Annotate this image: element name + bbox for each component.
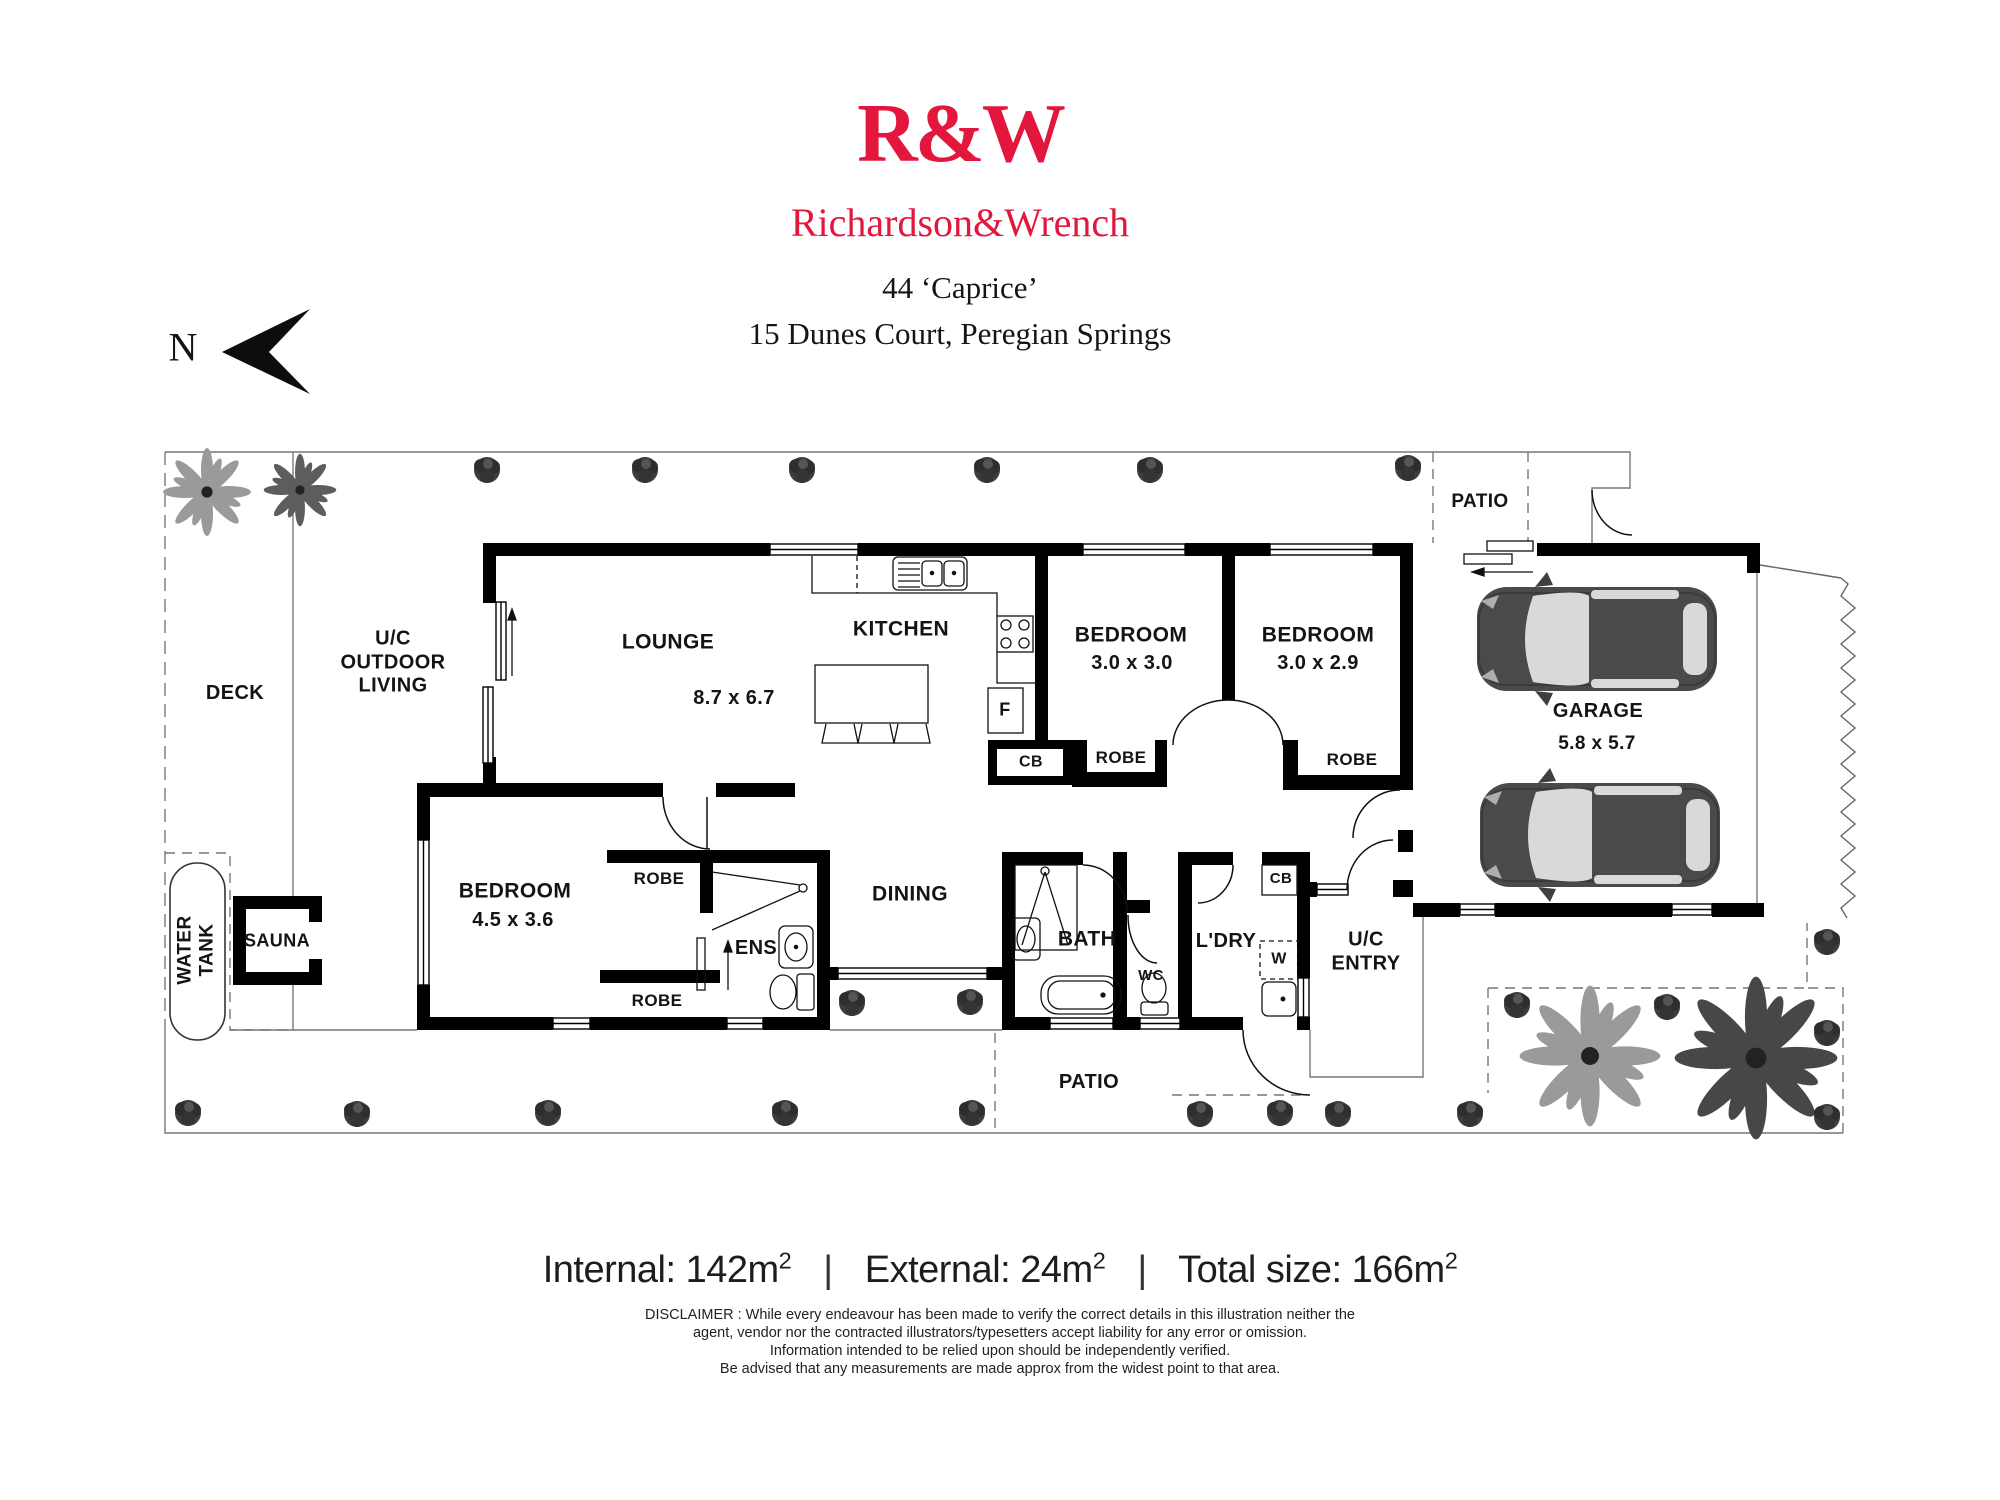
disclaimer: DISCLAIMER : While every endeavour has b…	[450, 1306, 1550, 1378]
bath-label: BATH	[1058, 928, 1116, 953]
lounge-label: LOUNGE	[622, 631, 714, 656]
step-symbols	[508, 541, 1533, 676]
garage-car-1	[1477, 572, 1717, 706]
outdoor-living-label: U/C OUTDOOR LIVING	[340, 628, 445, 699]
ens-label: ENS	[735, 937, 777, 961]
wc-label: WC	[1138, 967, 1164, 985]
washer-label: W	[1271, 951, 1287, 970]
rw-logo: R&W	[857, 92, 1063, 176]
kitchen-label: KITCHEN	[853, 618, 949, 643]
floorplan-page: R&W Richardson&Wrench 44 ‘Caprice’ 15 Du…	[0, 0, 2000, 1500]
lounge-dims: 8.7 x 6.7	[693, 687, 774, 711]
brand-name: Richardson&Wrench	[791, 203, 1129, 243]
separator: |	[801, 1249, 854, 1291]
north-label: N	[169, 323, 198, 370]
bedroom1-label: BEDROOM	[1075, 624, 1187, 649]
robe-bed2-label: ROBE	[1327, 750, 1378, 770]
listing-title: 44 ‘Caprice’	[882, 272, 1038, 303]
bedroom2-dims: 3.0 x 2.9	[1277, 652, 1358, 676]
garage-label: GARAGE	[1553, 700, 1643, 724]
total-area: Total size: 166m2	[1178, 1249, 1457, 1291]
bedroom3-dims: 4.5 x 3.6	[472, 909, 553, 933]
separator: |	[1115, 1249, 1168, 1291]
disclaimer-line: Information intended to be relied upon s…	[450, 1342, 1550, 1360]
sauna-label: SAUNA	[244, 930, 310, 951]
entry-label: U/C ENTRY	[1331, 928, 1400, 975]
cb-laundry-label: CB	[1270, 870, 1292, 888]
garage-car-2	[1480, 768, 1720, 902]
patio-top-label: PATIO	[1451, 491, 1508, 513]
bedroom1-dims: 3.0 x 3.0	[1091, 652, 1172, 676]
external-area: External: 24m2	[865, 1249, 1106, 1291]
robe-bed3-bottom-label: ROBE	[632, 991, 683, 1011]
area-summary: Internal: 142m2 | External: 24m2 | Total…	[543, 1247, 1458, 1292]
bedroom3-label: BEDROOM	[459, 880, 571, 905]
robe-bed3-top-label: ROBE	[634, 869, 685, 889]
fridge-label: F	[999, 699, 1010, 720]
deck-label: DECK	[206, 682, 264, 706]
laundry-label: L'DRY	[1196, 930, 1256, 954]
water-tank-label: WATER TANK	[175, 915, 220, 984]
robe-bed1-label: ROBE	[1096, 748, 1147, 768]
dining-label: DINING	[872, 883, 948, 908]
north-arrow-icon	[222, 309, 310, 394]
patio-bottom-label: PATIO	[1059, 1071, 1119, 1095]
disclaimer-line: Be advised that any measurements are mad…	[450, 1360, 1550, 1378]
garage-dims: 5.8 x 5.7	[1558, 733, 1636, 755]
disclaimer-line: DISCLAIMER : While every endeavour has b…	[450, 1306, 1550, 1324]
door-arcs	[663, 490, 1632, 1095]
cb-kitchen-label: CB	[1019, 754, 1043, 773]
disclaimer-line: agent, vendor nor the contracted illustr…	[450, 1324, 1550, 1342]
listing-address: 15 Dunes Court, Peregian Springs	[749, 318, 1172, 349]
internal-area: Internal: 142m2	[543, 1249, 792, 1291]
bedroom2-label: BEDROOM	[1262, 624, 1374, 649]
